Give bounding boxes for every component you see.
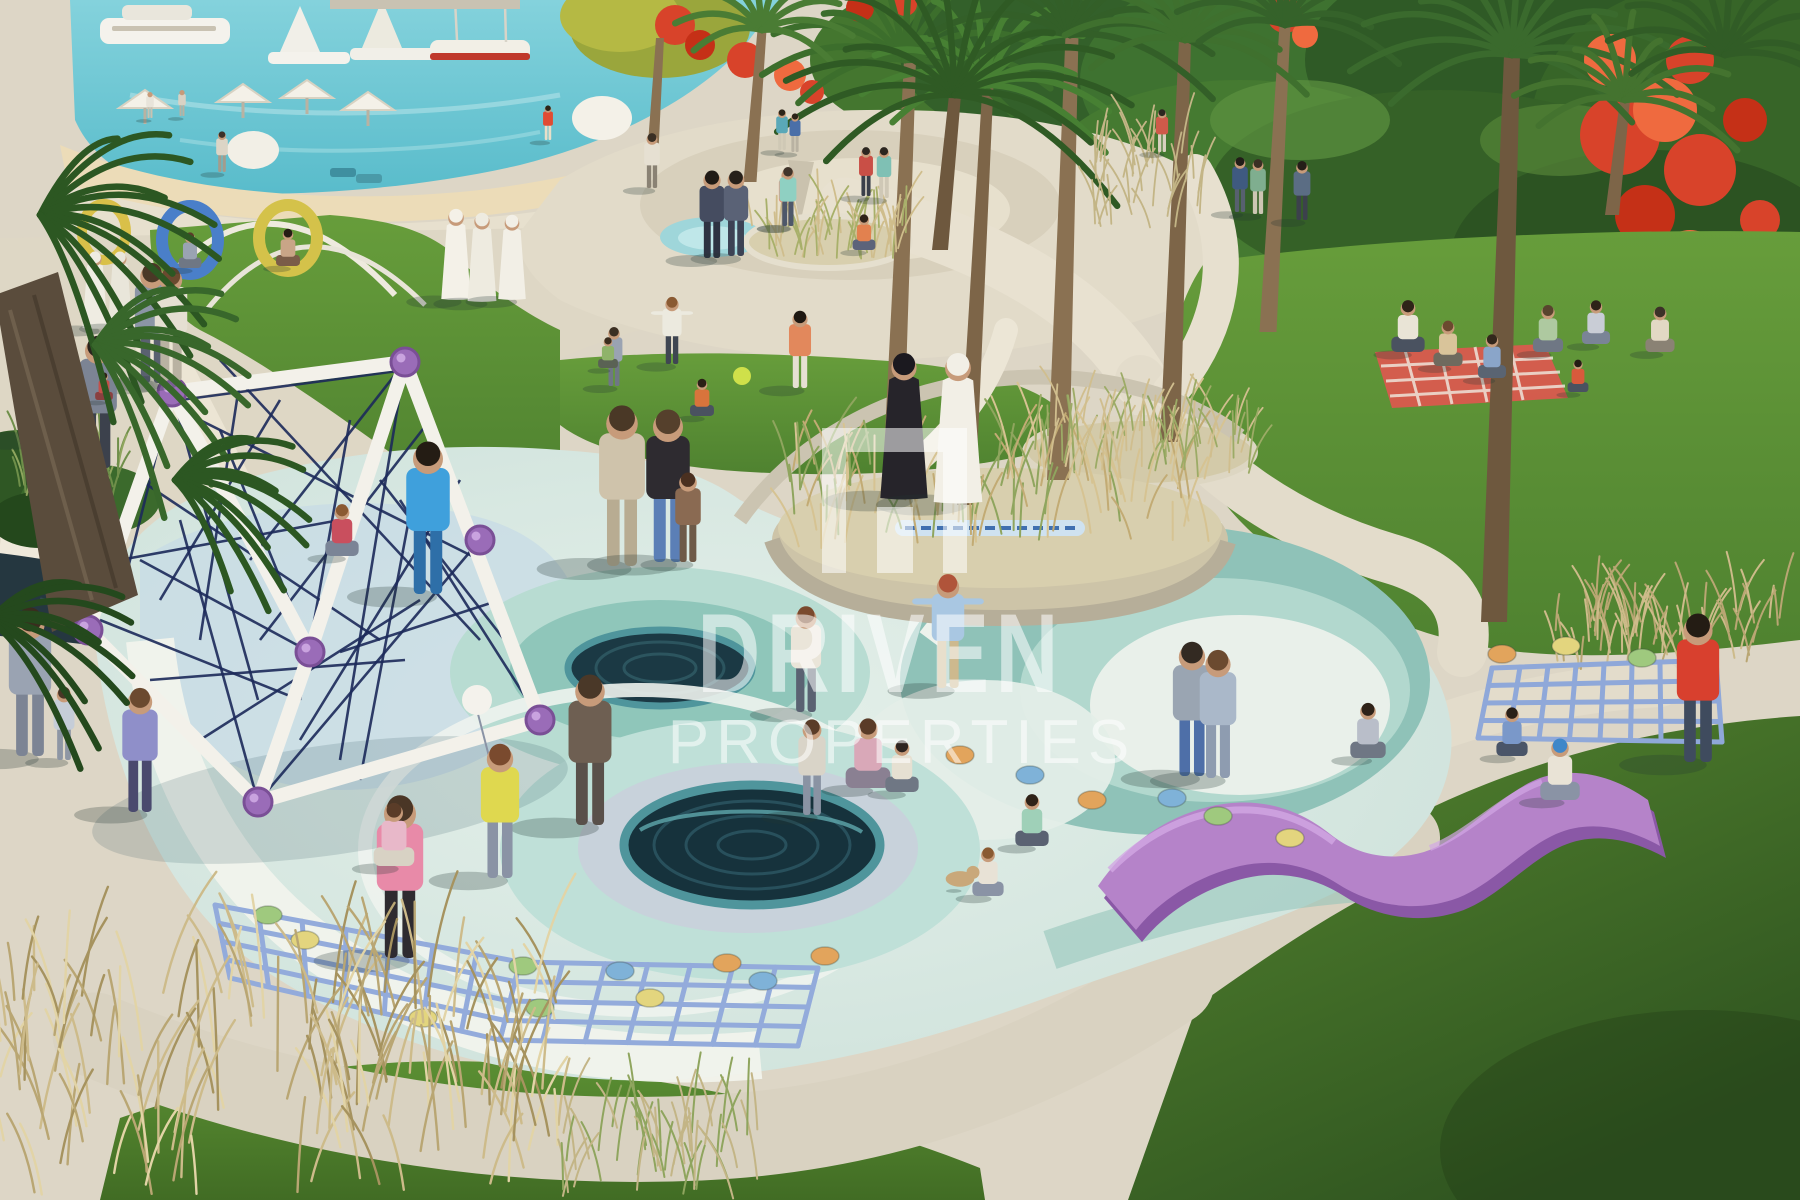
person-shadow	[1556, 392, 1580, 398]
leg	[1179, 715, 1190, 776]
climbing-stone	[1276, 829, 1304, 847]
shade-dome	[572, 96, 632, 140]
structure-joint	[244, 788, 272, 816]
leg	[487, 817, 498, 878]
leg	[808, 664, 816, 712]
person-shadow	[1463, 377, 1495, 385]
leg	[950, 636, 959, 688]
hair	[1506, 707, 1517, 718]
hair	[939, 574, 957, 592]
leg	[1241, 187, 1245, 212]
person-shadow	[1567, 343, 1599, 351]
torso	[789, 120, 800, 136]
leg	[728, 217, 735, 256]
climbing-stone	[1016, 766, 1044, 784]
hair	[797, 606, 814, 623]
leg	[430, 525, 442, 594]
leg	[1259, 189, 1263, 214]
hair	[783, 167, 793, 177]
hair	[1297, 161, 1307, 171]
leg	[1158, 133, 1161, 152]
leg	[1206, 720, 1216, 778]
torso	[1502, 721, 1521, 744]
torso	[146, 96, 154, 107]
leg	[793, 353, 799, 388]
net-rope	[1660, 662, 1661, 741]
head-cover	[506, 215, 519, 228]
torso	[1572, 369, 1585, 384]
pad-mound	[1090, 615, 1390, 795]
hair	[860, 214, 868, 222]
person-shadow	[956, 895, 992, 903]
hair	[1402, 300, 1414, 312]
torso	[662, 309, 681, 337]
leg	[867, 174, 871, 196]
leg	[142, 756, 152, 812]
leg	[704, 218, 711, 258]
leg	[737, 217, 744, 256]
leg	[791, 135, 794, 152]
torso	[1022, 809, 1042, 833]
torso	[724, 185, 748, 220]
hair	[1208, 650, 1229, 671]
torso	[978, 861, 997, 884]
torso	[382, 821, 407, 851]
person-shadow	[530, 141, 550, 146]
torso	[877, 156, 892, 177]
leg	[576, 757, 588, 825]
hair	[1159, 109, 1166, 116]
leg	[592, 757, 604, 825]
hair	[896, 740, 908, 752]
hair	[1443, 321, 1454, 332]
hair	[705, 171, 719, 185]
person-shadow	[623, 187, 655, 195]
leg	[1684, 695, 1696, 762]
person-shadow	[136, 119, 152, 123]
torso	[892, 755, 912, 779]
leg	[32, 689, 44, 756]
climbing-stone	[713, 954, 741, 972]
hair	[387, 803, 402, 818]
torso	[1539, 318, 1558, 340]
hair	[804, 719, 819, 734]
leg	[180, 104, 182, 116]
joint-highlight	[397, 354, 406, 363]
leg	[789, 199, 794, 226]
leg	[549, 124, 552, 140]
climbing-stone	[1078, 791, 1106, 809]
torso	[481, 767, 519, 822]
torso	[602, 346, 614, 360]
leg	[1235, 187, 1239, 212]
leg	[1163, 133, 1166, 152]
leg	[713, 218, 720, 258]
person-shadow	[857, 198, 887, 205]
leg	[796, 135, 799, 152]
leg	[502, 817, 513, 878]
climbing-stone	[1552, 637, 1580, 655]
head-cover	[893, 353, 915, 375]
torso	[1398, 315, 1418, 339]
climbing-stone	[946, 746, 974, 764]
structure-joint	[296, 638, 324, 666]
leg	[1296, 193, 1301, 220]
torso	[675, 488, 701, 525]
climbing-stone	[1204, 807, 1232, 825]
torso	[332, 519, 352, 543]
torso	[854, 738, 882, 771]
hair	[416, 441, 441, 466]
hair	[982, 847, 993, 858]
torso	[281, 239, 296, 256]
person-shadow	[200, 172, 224, 178]
torso	[122, 710, 157, 761]
hair	[792, 113, 798, 119]
person-shadow	[840, 250, 866, 256]
structure-joint	[466, 526, 494, 554]
head	[179, 90, 184, 95]
torso	[776, 116, 788, 133]
torso	[1200, 672, 1237, 725]
torso	[1677, 639, 1719, 700]
torso	[1483, 347, 1500, 368]
hair	[1574, 360, 1582, 368]
person-shadow	[636, 362, 676, 371]
climbing-stone	[606, 962, 634, 980]
climbing-stone	[1158, 789, 1186, 807]
person-shadow	[946, 889, 962, 893]
leg	[879, 175, 883, 198]
torso	[1587, 313, 1604, 334]
torso	[1250, 169, 1266, 192]
leg	[885, 175, 889, 198]
leg	[803, 772, 811, 815]
person-shadow	[1480, 755, 1516, 763]
dog-head	[967, 866, 980, 879]
person-shadow	[168, 117, 184, 121]
hair	[1553, 738, 1567, 752]
torso	[1439, 334, 1457, 355]
hair	[862, 147, 870, 155]
person-shadow	[587, 368, 610, 373]
leg	[680, 522, 687, 562]
torso	[1156, 117, 1168, 135]
joint-highlight	[250, 794, 259, 803]
grass-blade	[1062, 425, 1063, 460]
person-shadow	[1229, 213, 1261, 221]
hair	[604, 337, 611, 344]
hair	[779, 109, 786, 116]
person-shadow	[1271, 219, 1306, 227]
leg	[1220, 720, 1230, 778]
leg	[1700, 695, 1712, 762]
joint-highlight	[302, 644, 311, 653]
torso	[695, 389, 710, 406]
leg	[218, 154, 221, 172]
hair	[667, 297, 678, 308]
leg	[653, 163, 657, 188]
torso	[791, 625, 821, 669]
head-cover	[947, 353, 970, 376]
torso	[700, 186, 725, 222]
football	[733, 367, 751, 385]
hair	[729, 171, 743, 185]
joint-highlight	[472, 532, 481, 541]
grass-blade	[1047, 405, 1048, 435]
grass-blade	[119, 966, 120, 1056]
torso	[178, 94, 186, 105]
torso	[1294, 171, 1311, 195]
hair	[1254, 159, 1263, 168]
torso	[216, 138, 228, 155]
hair	[1487, 334, 1497, 344]
climbing-stone	[1488, 645, 1516, 663]
climbing-stone	[636, 989, 664, 1007]
hair	[656, 409, 681, 434]
leg	[150, 106, 152, 118]
leg	[1303, 193, 1308, 220]
torso	[1548, 756, 1572, 785]
hair	[681, 473, 695, 487]
torso	[857, 224, 871, 241]
hair	[489, 744, 511, 766]
net-rope	[1631, 663, 1633, 741]
torso	[789, 324, 811, 356]
leg	[782, 199, 787, 226]
torso	[599, 433, 645, 499]
hair	[1542, 305, 1553, 316]
leg	[647, 163, 651, 188]
leg	[783, 132, 786, 150]
torso	[543, 111, 553, 125]
leg	[861, 174, 865, 196]
head	[147, 92, 152, 97]
hair	[609, 327, 619, 337]
structure-joint	[526, 706, 554, 734]
torso	[644, 143, 660, 166]
grass-blade	[277, 957, 278, 1071]
climbing-stone	[254, 906, 282, 924]
person-shadow	[583, 385, 618, 393]
park-scene	[0, 0, 1800, 1200]
hair	[1026, 794, 1038, 806]
leg	[689, 522, 696, 562]
leg	[654, 493, 666, 562]
hair	[545, 105, 551, 111]
park-rendering-image: DRIVEN PROPERTIES	[0, 0, 1800, 1200]
leg	[128, 756, 138, 812]
hair	[219, 131, 226, 138]
hair	[1686, 614, 1710, 638]
torso	[780, 177, 797, 201]
hair	[1591, 300, 1601, 310]
torso	[1651, 320, 1669, 341]
leg	[813, 772, 821, 815]
person-shadow	[757, 225, 792, 233]
torso	[406, 468, 450, 531]
leg	[148, 106, 150, 118]
torso	[1357, 719, 1379, 745]
grass-blade	[359, 988, 360, 1102]
hair	[130, 688, 150, 708]
person-shadow	[1630, 351, 1664, 359]
leg	[778, 132, 781, 150]
person-shadow	[1418, 365, 1452, 373]
leg	[801, 353, 807, 388]
torso	[932, 594, 964, 641]
torso	[1232, 167, 1248, 190]
hair	[336, 504, 348, 516]
grass-blade	[1233, 411, 1234, 458]
trampoline-large	[624, 785, 880, 905]
person-shadow	[1139, 152, 1164, 158]
leg	[937, 636, 946, 688]
hair	[1362, 703, 1375, 716]
climbing-stone	[1628, 649, 1656, 667]
hair	[578, 674, 602, 698]
leg	[1253, 189, 1257, 214]
hair	[880, 147, 888, 155]
hair	[794, 311, 806, 323]
person-shadow	[1517, 351, 1552, 359]
leg	[673, 334, 678, 364]
hair	[1181, 642, 1203, 664]
leg	[182, 104, 184, 116]
climbing-stone	[749, 972, 777, 990]
hair	[609, 405, 635, 431]
grass-blade	[1622, 612, 1623, 652]
head-cover	[449, 209, 463, 223]
leg	[545, 124, 548, 140]
head-cover	[475, 213, 489, 227]
leg	[223, 154, 226, 172]
leg	[414, 525, 426, 594]
torso	[859, 156, 873, 176]
hair	[1655, 307, 1666, 318]
leg	[796, 664, 804, 712]
climbing-stone	[811, 947, 839, 965]
person-shadow	[263, 266, 291, 272]
hair	[698, 379, 707, 388]
hair	[284, 229, 293, 238]
leg	[666, 334, 671, 364]
torso	[798, 736, 825, 775]
structure-joint	[391, 348, 419, 376]
shade-dome	[227, 131, 279, 169]
person-shadow	[774, 152, 797, 157]
hair	[648, 133, 657, 142]
joint-highlight	[532, 712, 541, 721]
hair	[860, 718, 876, 734]
leg	[1194, 715, 1205, 776]
leg	[16, 689, 28, 756]
hair	[1236, 157, 1245, 166]
grass-blade	[821, 504, 822, 548]
torso	[569, 701, 612, 763]
